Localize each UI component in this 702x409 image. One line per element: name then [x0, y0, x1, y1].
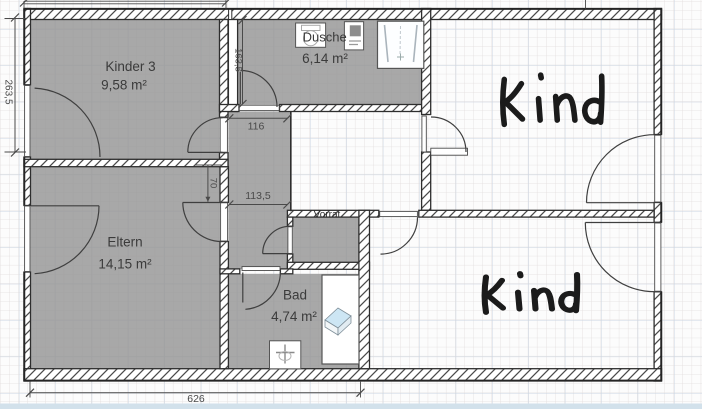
svg-text:116: 116 — [248, 121, 265, 133]
svg-text:6,14 m²: 6,14 m² — [302, 51, 348, 66]
svg-text:14,15 m²: 14,15 m² — [98, 257, 152, 272]
svg-text:163,5: 163,5 — [233, 48, 244, 72]
svg-text:Vorrat: Vorrat — [314, 210, 341, 221]
svg-text:263,5: 263,5 — [3, 79, 14, 104]
svg-text:626: 626 — [187, 393, 205, 405]
svg-text:9,58 m²: 9,58 m² — [101, 78, 147, 93]
svg-text:Eltern: Eltern — [107, 235, 142, 250]
svg-text:4,74 m²: 4,74 m² — [271, 309, 317, 324]
svg-text:Kinder 3: Kinder 3 — [105, 59, 155, 74]
svg-text:70: 70 — [208, 178, 219, 189]
svg-text:113,5: 113,5 — [245, 190, 271, 202]
svg-text:Bad: Bad — [283, 288, 307, 303]
svg-text:Dusche: Dusche — [303, 30, 347, 45]
